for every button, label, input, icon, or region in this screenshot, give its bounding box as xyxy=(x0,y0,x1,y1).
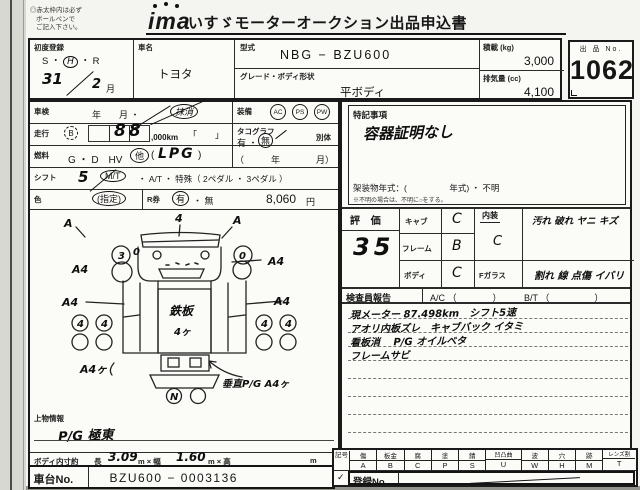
wheel-rl xyxy=(72,334,88,350)
mirror-left-2 xyxy=(112,262,132,282)
legend-code: H xyxy=(549,461,575,470)
legend-code: C xyxy=(405,461,431,470)
fglass-label: Fガラス xyxy=(479,270,506,281)
uwamono-rule xyxy=(34,440,334,441)
fuel-other: 他 xyxy=(135,151,144,161)
power-steering-icon: PS xyxy=(292,104,308,120)
dims-width-value: 1.60 xyxy=(176,450,206,464)
aircon-label: AC xyxy=(273,109,282,116)
model-value: NBG − BZU600 xyxy=(280,48,391,62)
equip-label: 装備 xyxy=(237,106,252,117)
legend-code: A xyxy=(350,461,376,470)
hand-squiggle-left xyxy=(110,363,114,375)
chassis-row: 車台No. BZU600 − 0003136 xyxy=(28,465,335,489)
legend-table: 傷 A 板金 B 腐 C 塗 P 錆 S 凹凸曲 U xyxy=(350,450,635,470)
displacement-value: 4,100 xyxy=(524,85,554,99)
legend-name: 傷 xyxy=(350,450,376,461)
legend-col: 傷 A xyxy=(350,450,377,470)
right-block: 特記事項 容器証明なし 架装物年式：( 年式) ・ 不明 ※不明の場合は、不明に… xyxy=(340,100,632,450)
powergate-note: 垂直P/G A4ヶ xyxy=(222,378,289,390)
shaken-label: 車検 xyxy=(34,106,49,117)
lot-number-value: 1062 xyxy=(570,55,632,86)
legend-symbol-label: 記号 xyxy=(334,451,350,470)
frame-label: フレーム xyxy=(402,243,432,254)
hand-stroke-reg xyxy=(66,71,93,96)
payload-value: 3,000 xyxy=(524,54,554,68)
tacho-date: （ 年 月） xyxy=(235,153,334,166)
legend-name: 凹凸曲 xyxy=(486,450,520,460)
ballpen-note-line2: ボールペンで xyxy=(30,16,140,25)
ballpen-note: ◎赤太枠内は必ず ボールペンで ご記入下さい。 xyxy=(30,7,140,33)
cab-dots xyxy=(166,263,198,265)
mark-a2: A xyxy=(232,214,242,227)
legend-code: S xyxy=(459,461,485,470)
color-label: 色 xyxy=(34,194,42,205)
mileage-label: 走行 xyxy=(34,128,49,139)
ballpen-note-line3: ご記入下さい。 xyxy=(30,24,140,33)
tacho-yes: 有 ・ xyxy=(237,136,258,149)
legend-name: 板金 xyxy=(377,450,403,461)
pw-label: PW xyxy=(317,109,327,116)
frame-year-hint: ※不明の場合は、不明に○をする。 xyxy=(353,195,447,204)
lot-number-box: 出 品 No. 1062 xyxy=(568,40,634,99)
mark-0-left: 0 xyxy=(133,247,140,258)
frame-value: B xyxy=(452,238,462,254)
tacho-no: 無 xyxy=(261,136,270,146)
shift-hand-5: 5 xyxy=(78,168,88,186)
binder-edge-line xyxy=(10,0,12,490)
inspector-bt: B/T （ ） xyxy=(524,291,603,304)
tacho-separate: 別体 xyxy=(316,132,331,143)
legend-code: M xyxy=(576,461,602,470)
legend-name: 錆 xyxy=(459,450,485,461)
special-notes-label: 特記事項 xyxy=(353,109,387,121)
legend-col: 穴 H xyxy=(549,450,576,470)
rticket-yes: 有 xyxy=(176,194,185,204)
body-value: C xyxy=(452,265,462,281)
legend-name: 波 xyxy=(522,450,548,461)
fglass-issues: 割れ 線 点傷 イバリ xyxy=(534,267,624,282)
tacho-no-circled: 無 xyxy=(258,133,273,148)
registration-check: ✓ xyxy=(337,473,345,483)
lot-box-tick xyxy=(571,90,577,96)
mark-n: N xyxy=(170,392,179,403)
rear-circle-2 xyxy=(191,389,206,404)
dims-u3: m xyxy=(310,456,317,465)
dims-length-value: 3.09 xyxy=(108,450,138,464)
mark-3: 3 xyxy=(118,251,125,262)
grade-label: グレード・ボディ形状 xyxy=(240,71,314,82)
first-reg-year: 31 xyxy=(42,70,63,88)
color-designated-circled: (指定) xyxy=(92,191,126,206)
car-name-value: トヨタ xyxy=(158,66,193,82)
rticket-yes-circled: 有 xyxy=(172,191,189,206)
rear-bumper xyxy=(150,375,219,388)
special-notes-value: 容器証明なし xyxy=(363,121,454,144)
legend-code: T xyxy=(603,459,635,468)
shaken-circled-massho: 抹消 xyxy=(170,104,198,119)
fuel-paren-open: ( xyxy=(151,150,154,161)
rear-box-left xyxy=(168,358,179,367)
wheel-mark-2: 4 xyxy=(100,319,108,330)
wheel-mark-3: 4 xyxy=(260,319,268,330)
era-s: S ・ xyxy=(42,56,60,67)
wheel-rr2 xyxy=(280,334,296,350)
interior-label: 内装 xyxy=(480,210,500,223)
cargo-bed xyxy=(158,289,211,353)
displacement-label: 排気量 (cc) xyxy=(483,73,521,84)
ima-logo: ima xyxy=(148,8,191,35)
rticket-label: R券 xyxy=(147,194,160,205)
mark-bottom-left: A4ヶ xyxy=(79,363,107,376)
shift-rest: ・ A/T ・ 特殊（ 2ペダル ・ 3ペダル ） xyxy=(138,173,288,185)
legend-col: 跡 M xyxy=(576,450,603,470)
model-label: 型式 xyxy=(240,42,255,53)
top-band: 初度登録 S ・ H ・ R 31 2 月 車名 トヨタ 型式 NBG − BZ… xyxy=(28,38,562,100)
fuel-paren-close: ) xyxy=(198,150,201,161)
mark-a4-left-mirror: A4 xyxy=(71,263,88,276)
rear-box-right xyxy=(190,358,201,367)
shaken-text: 年 月 ・ xyxy=(92,108,140,121)
mark-a4-right: A4 xyxy=(273,295,290,308)
fuel-label: 燃料 xyxy=(34,150,49,161)
fuel-value-lpg: LPG xyxy=(158,146,195,162)
legend-code: P xyxy=(432,461,458,470)
rating-label: 評 価 xyxy=(350,212,385,227)
rating-score: 35 xyxy=(353,233,394,261)
legend-code: W xyxy=(522,461,548,470)
lot-number-label: 出 品 No. xyxy=(570,44,632,54)
color-designated: (指定) xyxy=(97,194,121,204)
vehicle-damage-diagram: A 4 A 3 0 0 A4 A4 A4 A4 4 4 4 4 鉄板 4ヶ N … xyxy=(28,205,340,405)
interior-issues: 汚れ 破れ ヤニ キズ xyxy=(532,213,618,227)
wheel-rr xyxy=(256,334,272,350)
registration-row: 登録No. xyxy=(348,471,635,485)
wheel-mark-1: 4 xyxy=(76,319,84,330)
chassis-value: BZU600 − 0003136 xyxy=(110,471,238,485)
ballpen-note-line1: ◎赤太枠内は必ず xyxy=(30,7,140,16)
chassis-label: 車台No. xyxy=(34,471,74,487)
inspector-line-4: フレームサビ xyxy=(350,346,410,362)
era-h-circled: H xyxy=(63,56,78,68)
legend-col: 塗 P xyxy=(432,450,459,470)
special-notes-box: 特記事項 容器証明なし 架装物年式：( 年式) ・ 不明 ※不明の場合は、不明に… xyxy=(348,105,626,205)
legend-name: 塗 xyxy=(432,450,458,461)
inspector-label: 検査員報告 xyxy=(346,291,391,304)
legend-name: レンズ割 xyxy=(603,450,635,459)
legend-code: B xyxy=(377,461,403,470)
first-reg-label: 初度登録 xyxy=(34,42,64,53)
binder-edge-line-2 xyxy=(23,0,24,490)
car-name-label: 車名 xyxy=(138,42,153,53)
grille xyxy=(159,269,204,278)
mileage-brackets: 「 」 xyxy=(188,128,224,141)
rticket-price: 8,060 xyxy=(266,192,296,206)
hand-stroke-tacho xyxy=(275,130,287,139)
legend-box: 記号 傷 A 板金 B 腐 C 塗 P 錆 S 凹凸曲 xyxy=(332,448,638,487)
legend-col: レンズ割 T xyxy=(603,450,635,470)
form-title: いすゞモーターオークション出品申込書 xyxy=(188,12,467,33)
wheel-mark-4: 4 xyxy=(284,319,292,330)
first-reg-era: S ・ H ・ R xyxy=(42,53,100,68)
cab-light-right xyxy=(201,251,209,259)
payload-label: 積載 (kg) xyxy=(483,42,514,53)
era-r: ・ R xyxy=(81,56,100,67)
legend-col: 錆 S xyxy=(459,450,486,470)
title-underline xyxy=(146,33,566,35)
mark-a1: A xyxy=(63,217,73,230)
legend-name: 跡 xyxy=(576,450,602,461)
uwamono-label: 上物情報 xyxy=(34,413,64,424)
legend-col: 波 W xyxy=(522,450,549,470)
wheel-rl2 xyxy=(96,334,112,350)
first-reg-month-unit: 月 xyxy=(106,82,115,95)
bed-note-2: 4ヶ xyxy=(173,327,191,338)
legend-col: 腐 C xyxy=(405,450,432,470)
inspector-ac: A/C （ ） xyxy=(430,291,502,304)
cab-light-left xyxy=(153,251,161,259)
mark-a4-right-mirror: A4 xyxy=(267,255,284,268)
auction-application-sheet: ◎赤太枠内は必ず ボールペンで ご記入下さい。 ima いすゞモーターオークショ… xyxy=(0,0,640,490)
windshield-line xyxy=(143,240,218,242)
cab-label: キャブ xyxy=(405,216,428,227)
mileage-b-badge: B xyxy=(64,126,78,140)
power-window-icon: PW xyxy=(314,104,330,120)
fuel-other-circled: 他 xyxy=(130,148,149,163)
callout-top-center xyxy=(179,225,180,236)
aircon-icon: AC xyxy=(270,104,286,120)
mark-a4-left: A4 xyxy=(61,296,78,309)
mark-0-right: 0 xyxy=(239,251,246,262)
registration-hand-dash xyxy=(470,477,580,484)
first-reg-month: 2 xyxy=(92,77,101,92)
body-label: ボディ xyxy=(404,270,426,281)
fuel-options: G ・ D HV xyxy=(68,151,122,166)
registration-label: 登録No. xyxy=(353,474,387,488)
uwamono-value: P/G 極東 xyxy=(58,424,114,445)
shift-label: シフト xyxy=(34,172,57,183)
ps-label: PS xyxy=(296,109,305,116)
legend-code: U xyxy=(486,460,520,469)
legend-col: 凹凸曲 U xyxy=(486,450,521,470)
frame-year-line: 架装物年式：( 年式) ・ 不明 xyxy=(353,182,499,194)
cab-value: C xyxy=(452,211,462,227)
callout-top-left xyxy=(76,227,85,237)
interior-value: C xyxy=(493,234,502,249)
callout-top-right xyxy=(222,227,232,238)
mark-4-top: 4 xyxy=(174,212,183,225)
legend-name: 腐 xyxy=(405,450,431,461)
grade-value: 平ボディ xyxy=(340,84,385,100)
bed-note: 鉄板 xyxy=(169,304,195,318)
legend-name: 穴 xyxy=(549,450,575,461)
callout-left xyxy=(86,302,124,304)
mileage-unit: ,000km xyxy=(151,133,178,142)
legend-col: 板金 B xyxy=(377,450,404,470)
badge-b: B xyxy=(68,129,73,138)
